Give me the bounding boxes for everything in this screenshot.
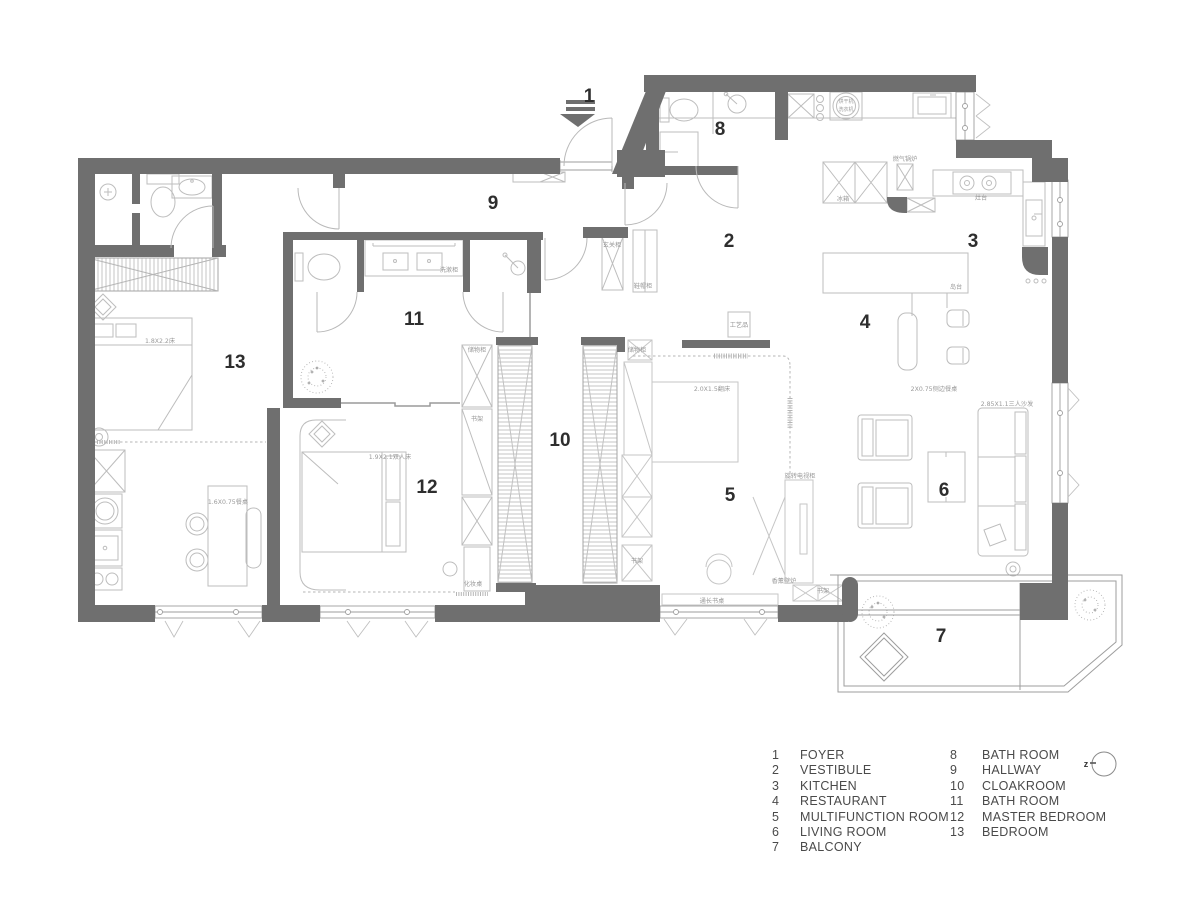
wall-vestibule (583, 227, 628, 238)
annotation-label: 化妆桌 (464, 580, 483, 588)
annotation-label: 洗衣机 (838, 106, 853, 113)
room-number-bath11: 11 (404, 309, 425, 330)
annotation-label: 香薰壁炉 (772, 577, 797, 585)
annotation-label: 储物柜 (468, 346, 487, 354)
restaurant-furniture (823, 253, 969, 370)
annotation-label: 玄关柜 (603, 241, 622, 249)
wall-bottom-thick (525, 585, 660, 622)
window (320, 606, 435, 618)
window (155, 606, 262, 618)
door-bath13 (171, 206, 213, 248)
room-number-cloakroom: 10 (549, 430, 570, 451)
wall-bottom-1 (78, 605, 155, 622)
wall-entry-block-small (622, 177, 634, 189)
wall-pillar-tr (1032, 158, 1068, 182)
entry-threshold (560, 160, 612, 172)
wall-wardrobe-top-l (496, 337, 538, 345)
wall-right-1 (1052, 237, 1068, 383)
room-number-restaurant: 4 (860, 312, 871, 333)
wall-hall-pillar (333, 170, 345, 188)
wall-round-stub (842, 577, 858, 622)
north-indicator (1090, 752, 1116, 776)
room-number-balcony: 7 (936, 626, 947, 647)
door-bath11-shower (463, 292, 503, 332)
annotation-label: 1.8X2.2床 (145, 337, 175, 345)
wall-kitchen-corner (1022, 247, 1048, 275)
bathroom-13-fixtures (100, 174, 212, 217)
wall-bath11-left (283, 232, 293, 408)
annotation-label: 灶台 (975, 194, 987, 202)
room-number-kitchen: 3 (968, 231, 979, 252)
floor-plan-drawing: 1 2 3 4 5 6 7 8 9 10 11 12 13 冰箱 烘干机 洗衣机… (0, 0, 1200, 900)
annotation-label: 烘干机 (838, 98, 853, 105)
door-bath11-wc (317, 292, 357, 332)
wall-left (78, 158, 95, 620)
plant-icon (301, 361, 333, 393)
door-vestibule-entry (625, 183, 667, 225)
annotation-label: 洗漱柜 (440, 266, 459, 274)
north-letter: z (1084, 759, 1089, 769)
room-number-foyer: 1 (584, 86, 595, 107)
window (956, 92, 974, 140)
annotation-label: 储物柜 (628, 346, 647, 354)
annotation-label: 书架 (471, 415, 483, 423)
window (1052, 180, 1068, 237)
wall-bath11-right (527, 232, 541, 293)
wall-media (682, 340, 770, 348)
annotation-label: 1.9X2.1双人床 (369, 453, 411, 461)
wall-bath11-div1 (357, 238, 364, 292)
wardrobe-13 (88, 258, 218, 291)
annotation-label: 2.85X1.1三人沙发 (981, 400, 1034, 408)
wall-top-right (644, 75, 976, 92)
balcony-outline (830, 575, 1122, 692)
bed-13 (88, 294, 192, 446)
wall-bath13-div-a (132, 174, 140, 204)
dashed-lines (95, 356, 790, 594)
plant-icon (1075, 590, 1105, 620)
annotation-label: 书架 (817, 587, 829, 595)
annotation-label: 通长书桌 (700, 597, 725, 605)
cloakroom-wardrobes (498, 345, 617, 583)
window (1052, 383, 1068, 503)
annotation-label: 岛台 (950, 283, 962, 291)
room-number-bedroom: 13 (224, 352, 245, 373)
door-hall-vestibule (545, 238, 587, 280)
room-number-vestibule: 2 (724, 231, 735, 252)
bathroom-8-fixtures (660, 92, 746, 168)
wall-bath11-top (283, 232, 543, 240)
annotation-label: 2X0.75侧边餐桌 (911, 385, 958, 393)
north-circle-icon (1092, 752, 1116, 776)
wall-col5-top (617, 338, 625, 352)
wall-bath11-div2 (463, 238, 470, 292)
annotation-label: 鞋帽柜 (634, 282, 653, 290)
wall-bath13-bottom (78, 245, 174, 257)
wall-bottom-4 (778, 605, 848, 622)
annotation-label: 燃气锅炉 (893, 155, 918, 163)
room-number-multifunction: 5 (725, 485, 736, 506)
wall-balcony-corner (1020, 583, 1068, 620)
wall-step (956, 140, 1052, 158)
wall-kitchen-curve (887, 197, 907, 213)
door-entrance (564, 118, 612, 166)
annotation-label: 工艺品 (730, 321, 749, 329)
annotation-label: 冰箱 (837, 195, 849, 203)
room-number-master: 12 (416, 477, 437, 498)
wall-bath11-bottom (283, 398, 341, 408)
storage-column-12 (443, 345, 492, 591)
walls-layer (78, 75, 1068, 622)
bathroom-11-fixtures (295, 240, 525, 281)
wall-top-left (78, 158, 560, 174)
wall-12-left (267, 408, 280, 620)
wall-bath8-right (775, 92, 788, 140)
annotation-label: 书架 (631, 557, 643, 565)
plant-icon (862, 596, 894, 628)
wall-bottom-3 (435, 605, 528, 622)
room-number-living: 6 (939, 480, 950, 501)
annotation-label: 1.6X0.75餐桌 (208, 498, 248, 506)
wall-bath13-stub (212, 245, 226, 257)
wall-wardrobe-bottom (496, 583, 536, 592)
annotation-label: 2.0X1.5翻床 (694, 385, 730, 393)
annotation-label: 旋转电视柜 (785, 472, 816, 480)
bed-12 (300, 420, 406, 590)
wall-entry-block (617, 150, 665, 177)
room-number-bath8: 8 (715, 119, 726, 140)
wall-right-2 (1052, 503, 1068, 583)
floor-plan-page: 1 2 3 4 5 6 7 8 9 10 11 12 13 冰箱 烘干机 洗衣机… (0, 0, 1200, 900)
room-number-hallway: 9 (488, 193, 499, 214)
wall-bath13-div-b (132, 213, 140, 250)
door-hallway (298, 188, 339, 229)
